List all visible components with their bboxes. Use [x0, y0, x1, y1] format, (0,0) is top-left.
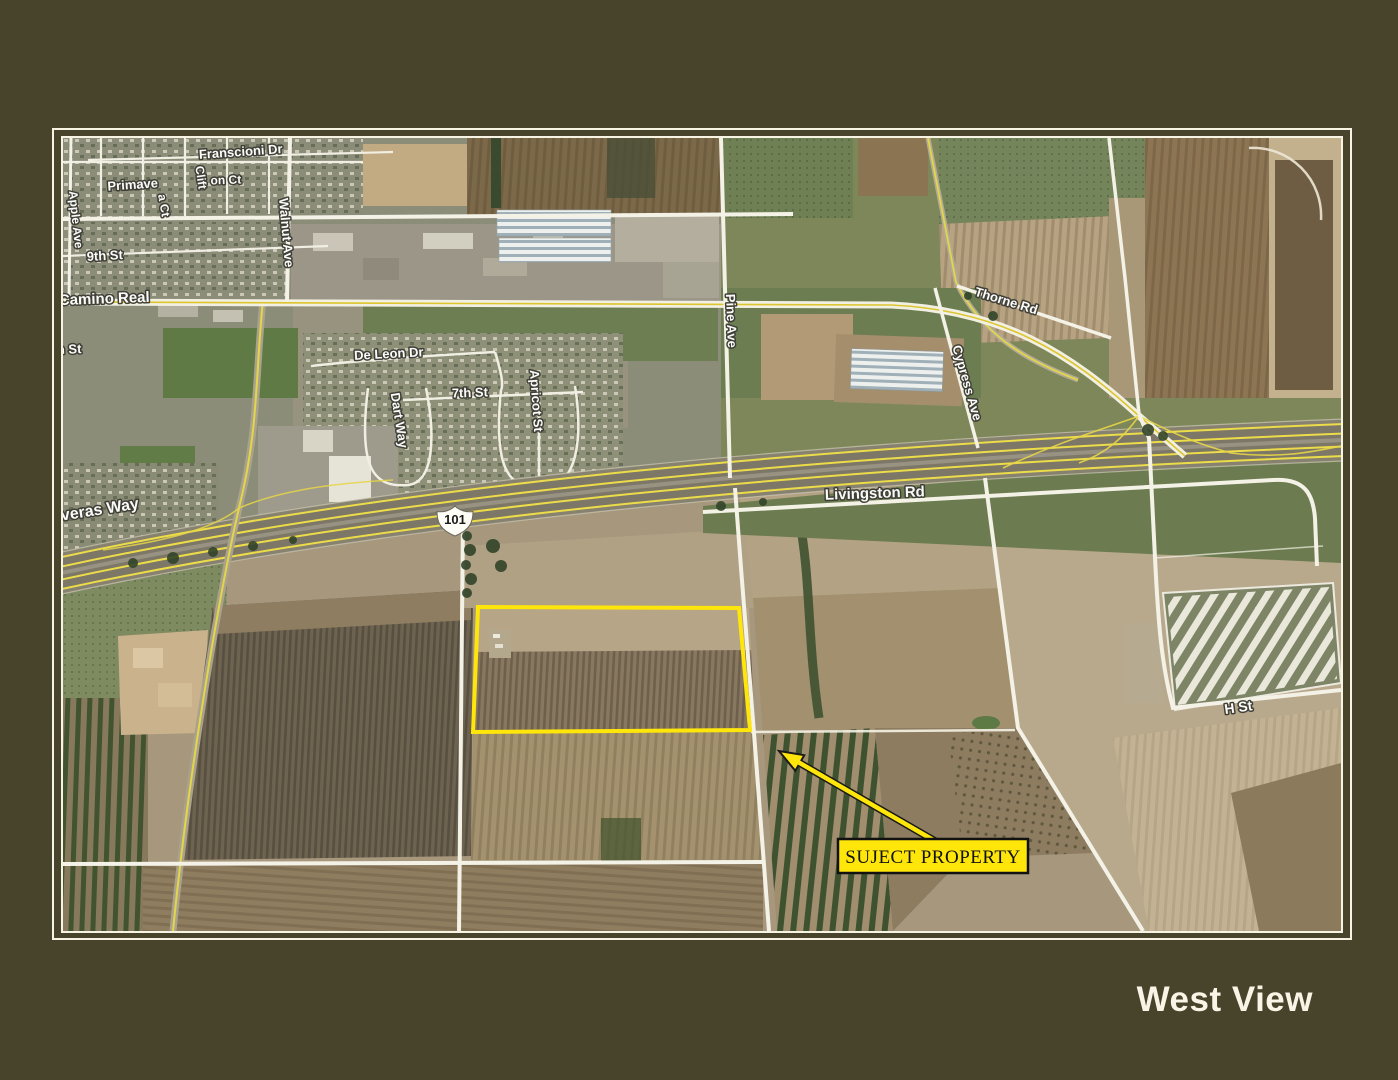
- shield-number: 101: [444, 512, 466, 527]
- road-label: h St: [63, 341, 82, 357]
- slide: { "page": { "background": "#48432b", "ti…: [0, 0, 1398, 1080]
- aerial-photo: SUJECT PROPERTY Franscioni DrClifton CtP…: [63, 138, 1341, 931]
- road-label: Pine Ave: [723, 294, 740, 348]
- road-label: on Ct: [210, 172, 241, 187]
- subject-label-box: SUJECT PROPERTY: [838, 839, 1028, 873]
- road-label: Livingston Rd: [825, 483, 926, 503]
- retention-pond: [972, 716, 1000, 730]
- subject-label-text: SUJECT PROPERTY: [845, 847, 1020, 868]
- road-label: Camino Real: [63, 289, 150, 309]
- barn-buildings: [834, 334, 964, 406]
- view-caption: West View: [1137, 980, 1313, 1020]
- road-label: 7th St: [452, 384, 489, 400]
- road-label: 9th St: [86, 247, 124, 264]
- aerial-photo-frame: SUJECT PROPERTY Franscioni DrClifton CtP…: [61, 136, 1343, 933]
